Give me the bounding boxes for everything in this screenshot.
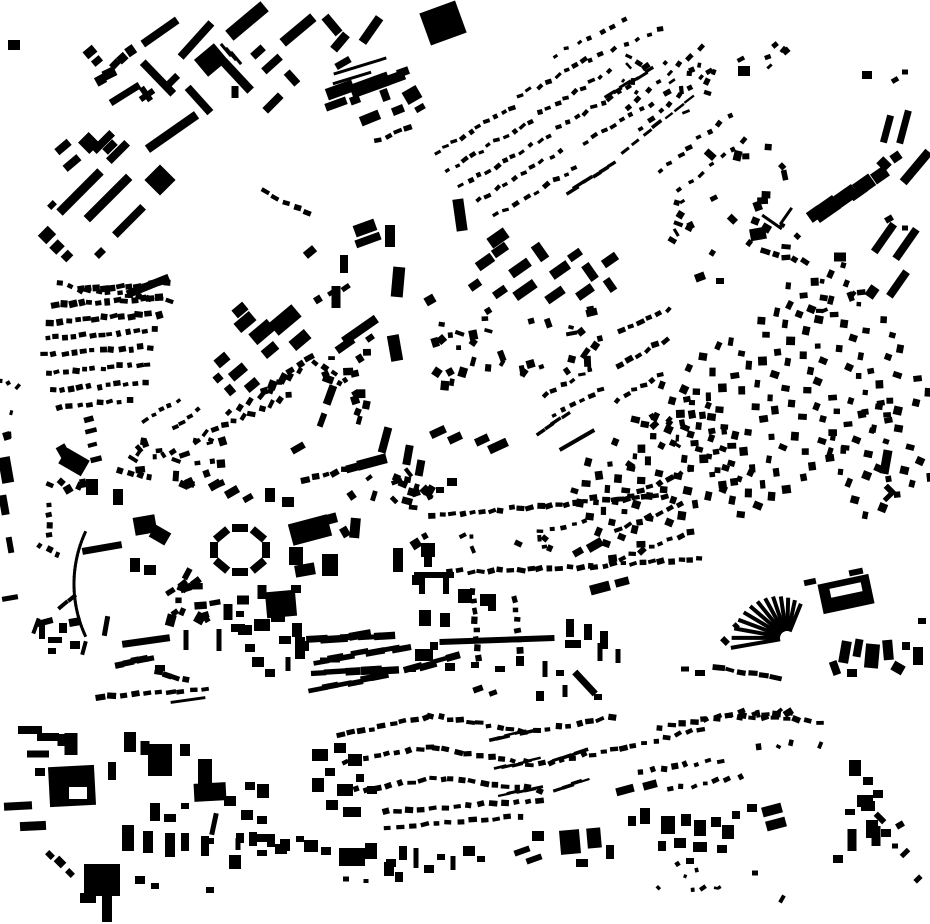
buildings-layer <box>0 0 930 924</box>
figure-ground-city-map <box>0 0 930 924</box>
